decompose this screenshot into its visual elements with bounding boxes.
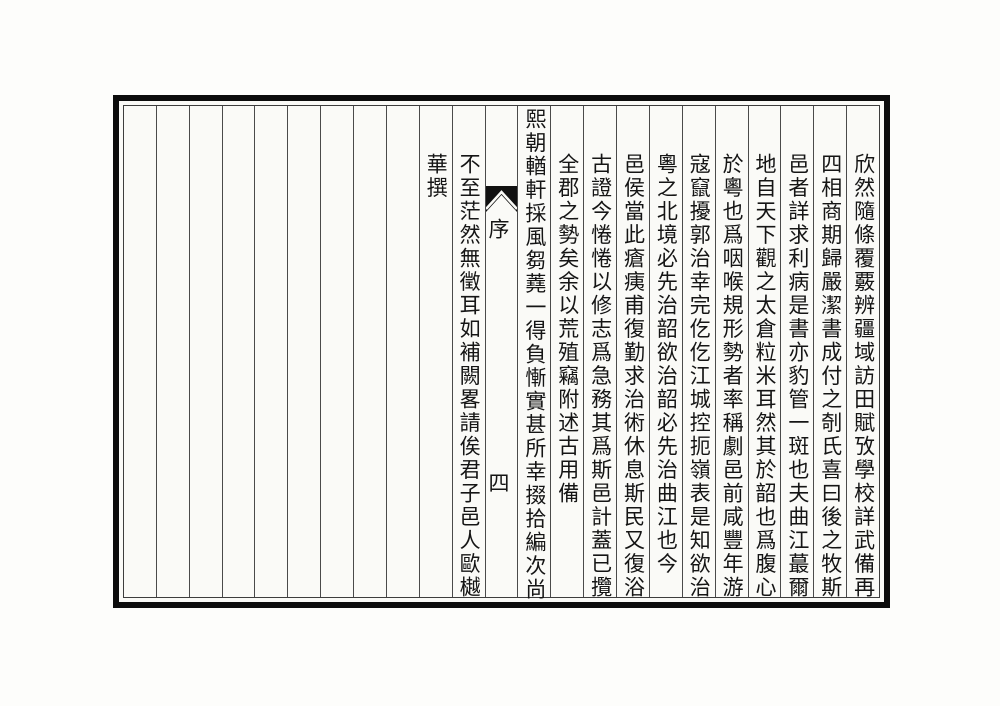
- text-column: 寇竄擾郭治幸完仡仡江城控扼嶺表是知欲治: [683, 106, 716, 597]
- text-column: 欣然隨條覆覈辨疆域訪田賦攷學校詳武備再: [847, 106, 879, 597]
- text-column: 地自天下觀之太倉粒米耳然其於韶也爲腹心: [749, 106, 782, 597]
- centerfold-column: 序 四: [486, 106, 519, 597]
- text-column: 四相商期歸嚴潔書成付之剞氏喜曰後之牧斯: [814, 106, 847, 597]
- text-column: 不至茫然無徵耳如補闕畧請俟君子邑人歐樾: [453, 106, 486, 597]
- section-label: 序: [490, 218, 513, 239]
- book-page-frame: 欣然隨條覆覈辨疆域訪田賦攷學校詳武備再 四相商期歸嚴潔書成付之剞氏喜曰後之牧斯 …: [113, 95, 890, 608]
- text-column: 熙朝輶軒採風芻蕘一得負慚實甚所幸掇拾編次尚: [518, 106, 551, 597]
- column-text: 熙朝輶軒採風芻蕘一得負慚實甚所幸掇拾編次尚: [519, 106, 550, 597]
- scan-background: 欣然隨條覆覈辨疆域訪田賦攷學校詳武備再 四相商期歸嚴潔書成付之剞氏喜曰後之牧斯 …: [0, 0, 1000, 706]
- text-column: 於粵也爲咽喉規形勢者率稱劇邑前咸豐年游: [716, 106, 749, 597]
- column-text: 不至茫然無徵耳如補闕畧請俟君子邑人歐樾: [453, 106, 484, 597]
- column-text: 邑侯當此瘡痍甫復勤求治術休息斯民又復浴: [617, 106, 648, 597]
- text-column: 全郡之勢矣余以荒殖竊附述古用備: [551, 106, 584, 597]
- column-text: 於粵也爲咽喉規形勢者率稱劇邑前咸豐年游: [716, 106, 747, 597]
- empty-column: [387, 106, 420, 597]
- column-text: 寇竄擾郭治幸完仡仡江城控扼嶺表是知欲治: [683, 106, 714, 597]
- text-column: 邑侯當此瘡痍甫復勤求治術休息斯民又復浴: [617, 106, 650, 597]
- column-text: 地自天下觀之太倉粒米耳然其於韶也爲腹心: [749, 106, 780, 597]
- empty-column: [223, 106, 256, 597]
- column-text: 全郡之勢矣余以荒殖竊附述古用備: [552, 106, 583, 597]
- text-column: 華撰: [420, 106, 453, 597]
- page-number: 四: [490, 472, 513, 493]
- empty-column: [124, 106, 157, 597]
- empty-column: [354, 106, 387, 597]
- text-grid: 欣然隨條覆覈辨疆域訪田賦攷學校詳武備再 四相商期歸嚴潔書成付之剞氏喜曰後之牧斯 …: [123, 105, 880, 598]
- empty-column: [321, 106, 354, 597]
- empty-column: [288, 106, 321, 597]
- text-column: 邑者詳求利病是書亦豹管一斑也夫曲江蕞爾: [781, 106, 814, 597]
- column-text: 欣然隨條覆覈辨疆域訪田賦攷學校詳武備再: [848, 106, 879, 597]
- text-column: 粵之北境必先治韶欲治韶必先治曲江也今: [650, 106, 683, 597]
- column-text: 四相商期歸嚴潔書成付之剞氏喜曰後之牧斯: [815, 106, 846, 597]
- column-text: 粵之北境必先治韶欲治韶必先治曲江也今: [650, 106, 681, 597]
- column-text: 邑者詳求利病是書亦豹管一斑也夫曲江蕞爾: [782, 106, 813, 597]
- empty-column: [255, 106, 288, 597]
- fishtail-icon: [486, 186, 517, 216]
- text-column: 古證今惓惓以修志爲急務其爲斯邑計蓋已攬: [584, 106, 617, 597]
- column-text: 古證今惓惓以修志爲急務其爲斯邑計蓋已攬: [585, 106, 616, 597]
- empty-column: [157, 106, 190, 597]
- empty-column: [190, 106, 223, 597]
- column-text: 華撰: [420, 106, 451, 597]
